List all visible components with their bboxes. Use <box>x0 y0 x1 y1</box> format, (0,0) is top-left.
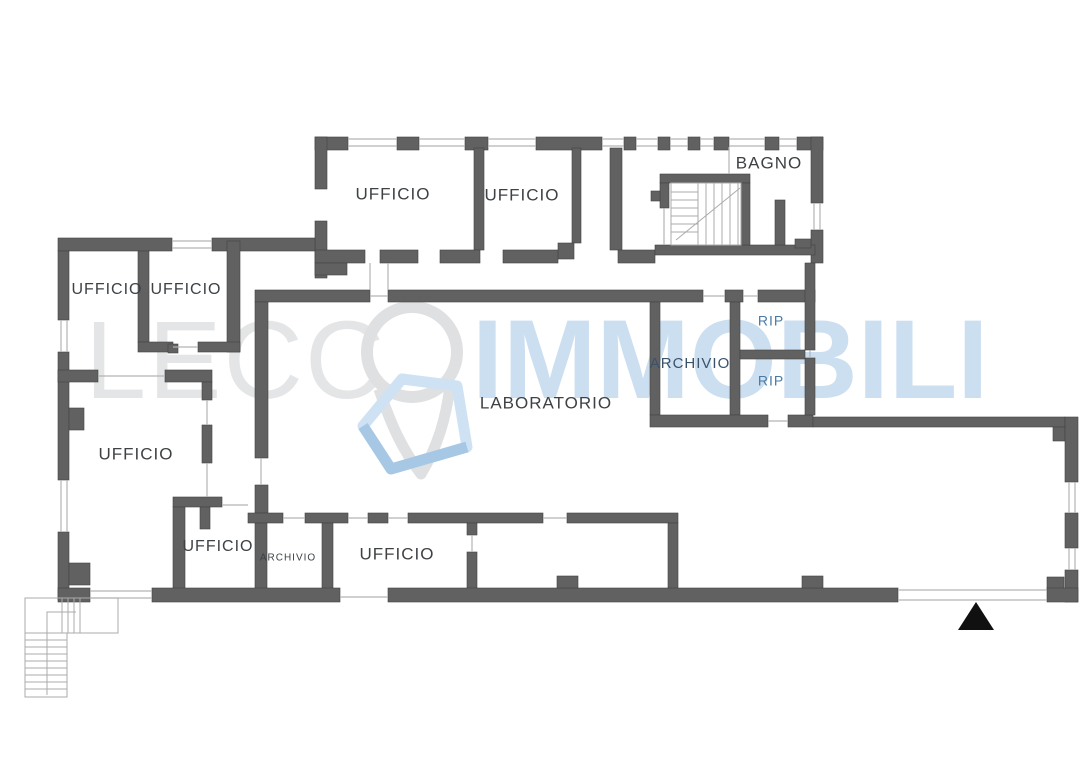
wall-segment <box>651 191 660 201</box>
wall-segment <box>380 250 418 263</box>
wall-segment <box>58 238 172 251</box>
wall-segment <box>440 250 480 263</box>
wall-segment <box>315 137 327 189</box>
room-label: ARCHIVIO <box>650 355 731 372</box>
wall-segment <box>322 523 333 593</box>
wall-segment <box>1065 417 1078 482</box>
room-label: UFFICIO <box>99 444 174 463</box>
wall-segment <box>503 250 558 263</box>
wall-segment <box>668 523 678 593</box>
wall-segment <box>255 290 370 302</box>
wall-segment <box>388 588 898 602</box>
wall-segment <box>255 485 268 513</box>
wall-segment <box>788 415 813 427</box>
wall-segment <box>741 183 750 245</box>
wall-segment <box>765 137 779 150</box>
wall-segment <box>775 200 785 245</box>
room-label: UFFICIO <box>356 184 431 203</box>
wall-segment <box>655 245 815 255</box>
wall-segment <box>368 513 388 523</box>
wall-segment <box>714 137 729 150</box>
wall-segment <box>255 302 268 458</box>
wall-segment <box>152 588 340 602</box>
wall-segment <box>658 137 670 150</box>
wall-segment <box>173 497 222 507</box>
wall-segment <box>813 417 1065 427</box>
room-label: UFFICIO <box>360 544 435 563</box>
wall-segment <box>397 137 419 150</box>
wall-segment <box>795 239 811 248</box>
room-label: RIP <box>758 313 784 329</box>
wall-segment <box>688 137 700 150</box>
wall-segment <box>1053 427 1065 441</box>
wall-segment <box>248 513 283 523</box>
wall-segment <box>1065 513 1078 548</box>
room-label: UFFICIO <box>151 281 222 298</box>
wall-segment <box>572 148 581 243</box>
wall-segment <box>69 408 84 430</box>
wall-segment <box>58 251 69 320</box>
wall-segment <box>200 507 210 529</box>
room-label: UFFICIO <box>485 185 560 204</box>
room-label: ARCHIVIO <box>260 553 316 564</box>
wall-segment <box>202 425 212 463</box>
room-label: UFFICIO <box>72 281 143 298</box>
room-label: RIP <box>758 373 784 389</box>
wall-segment <box>660 174 750 183</box>
wall-segment <box>811 137 823 203</box>
room-label: UFFICIO <box>183 538 254 555</box>
wall-segment <box>567 513 678 523</box>
floor-plan-svg: LECCIMMOBILIUFFICIOUFFICIOBAGNOUFFICIOUF… <box>0 0 1086 768</box>
wall-segment <box>202 382 212 400</box>
wall-segment <box>805 358 815 415</box>
wall-segment <box>618 250 655 263</box>
room-label: LABORATORIO <box>480 393 612 412</box>
wall-segment <box>474 148 484 250</box>
wall-segment <box>69 563 90 585</box>
wall-segment <box>467 552 477 593</box>
wall-segment <box>725 290 743 302</box>
wall-segment <box>227 241 240 352</box>
wall-segment <box>610 148 622 250</box>
wall-segment <box>624 137 636 150</box>
wall-segment <box>388 290 703 302</box>
wall-segment <box>660 183 669 208</box>
wall-segment <box>315 250 365 263</box>
wall-segment <box>467 523 477 535</box>
wall-segment <box>198 342 240 352</box>
wall-segment <box>315 263 347 275</box>
wall-segment <box>165 370 212 382</box>
wall-segment <box>1047 588 1078 602</box>
floor-plan: LECCIMMOBILIUFFICIOUFFICIOBAGNOUFFICIOUF… <box>0 0 1086 768</box>
wall-segment <box>558 243 574 259</box>
wall-segment <box>408 513 543 523</box>
wall-segment <box>536 137 602 150</box>
wall-segment <box>58 370 98 382</box>
wall-segment <box>650 415 768 427</box>
wall-segment <box>730 302 740 415</box>
wall-segment <box>802 576 823 588</box>
wall-segment <box>168 344 178 353</box>
wall-segment <box>740 350 805 359</box>
room-label: BAGNO <box>736 153 802 172</box>
wall-segment <box>805 263 815 350</box>
wall-segment <box>557 576 578 588</box>
wall-segment <box>305 513 348 523</box>
